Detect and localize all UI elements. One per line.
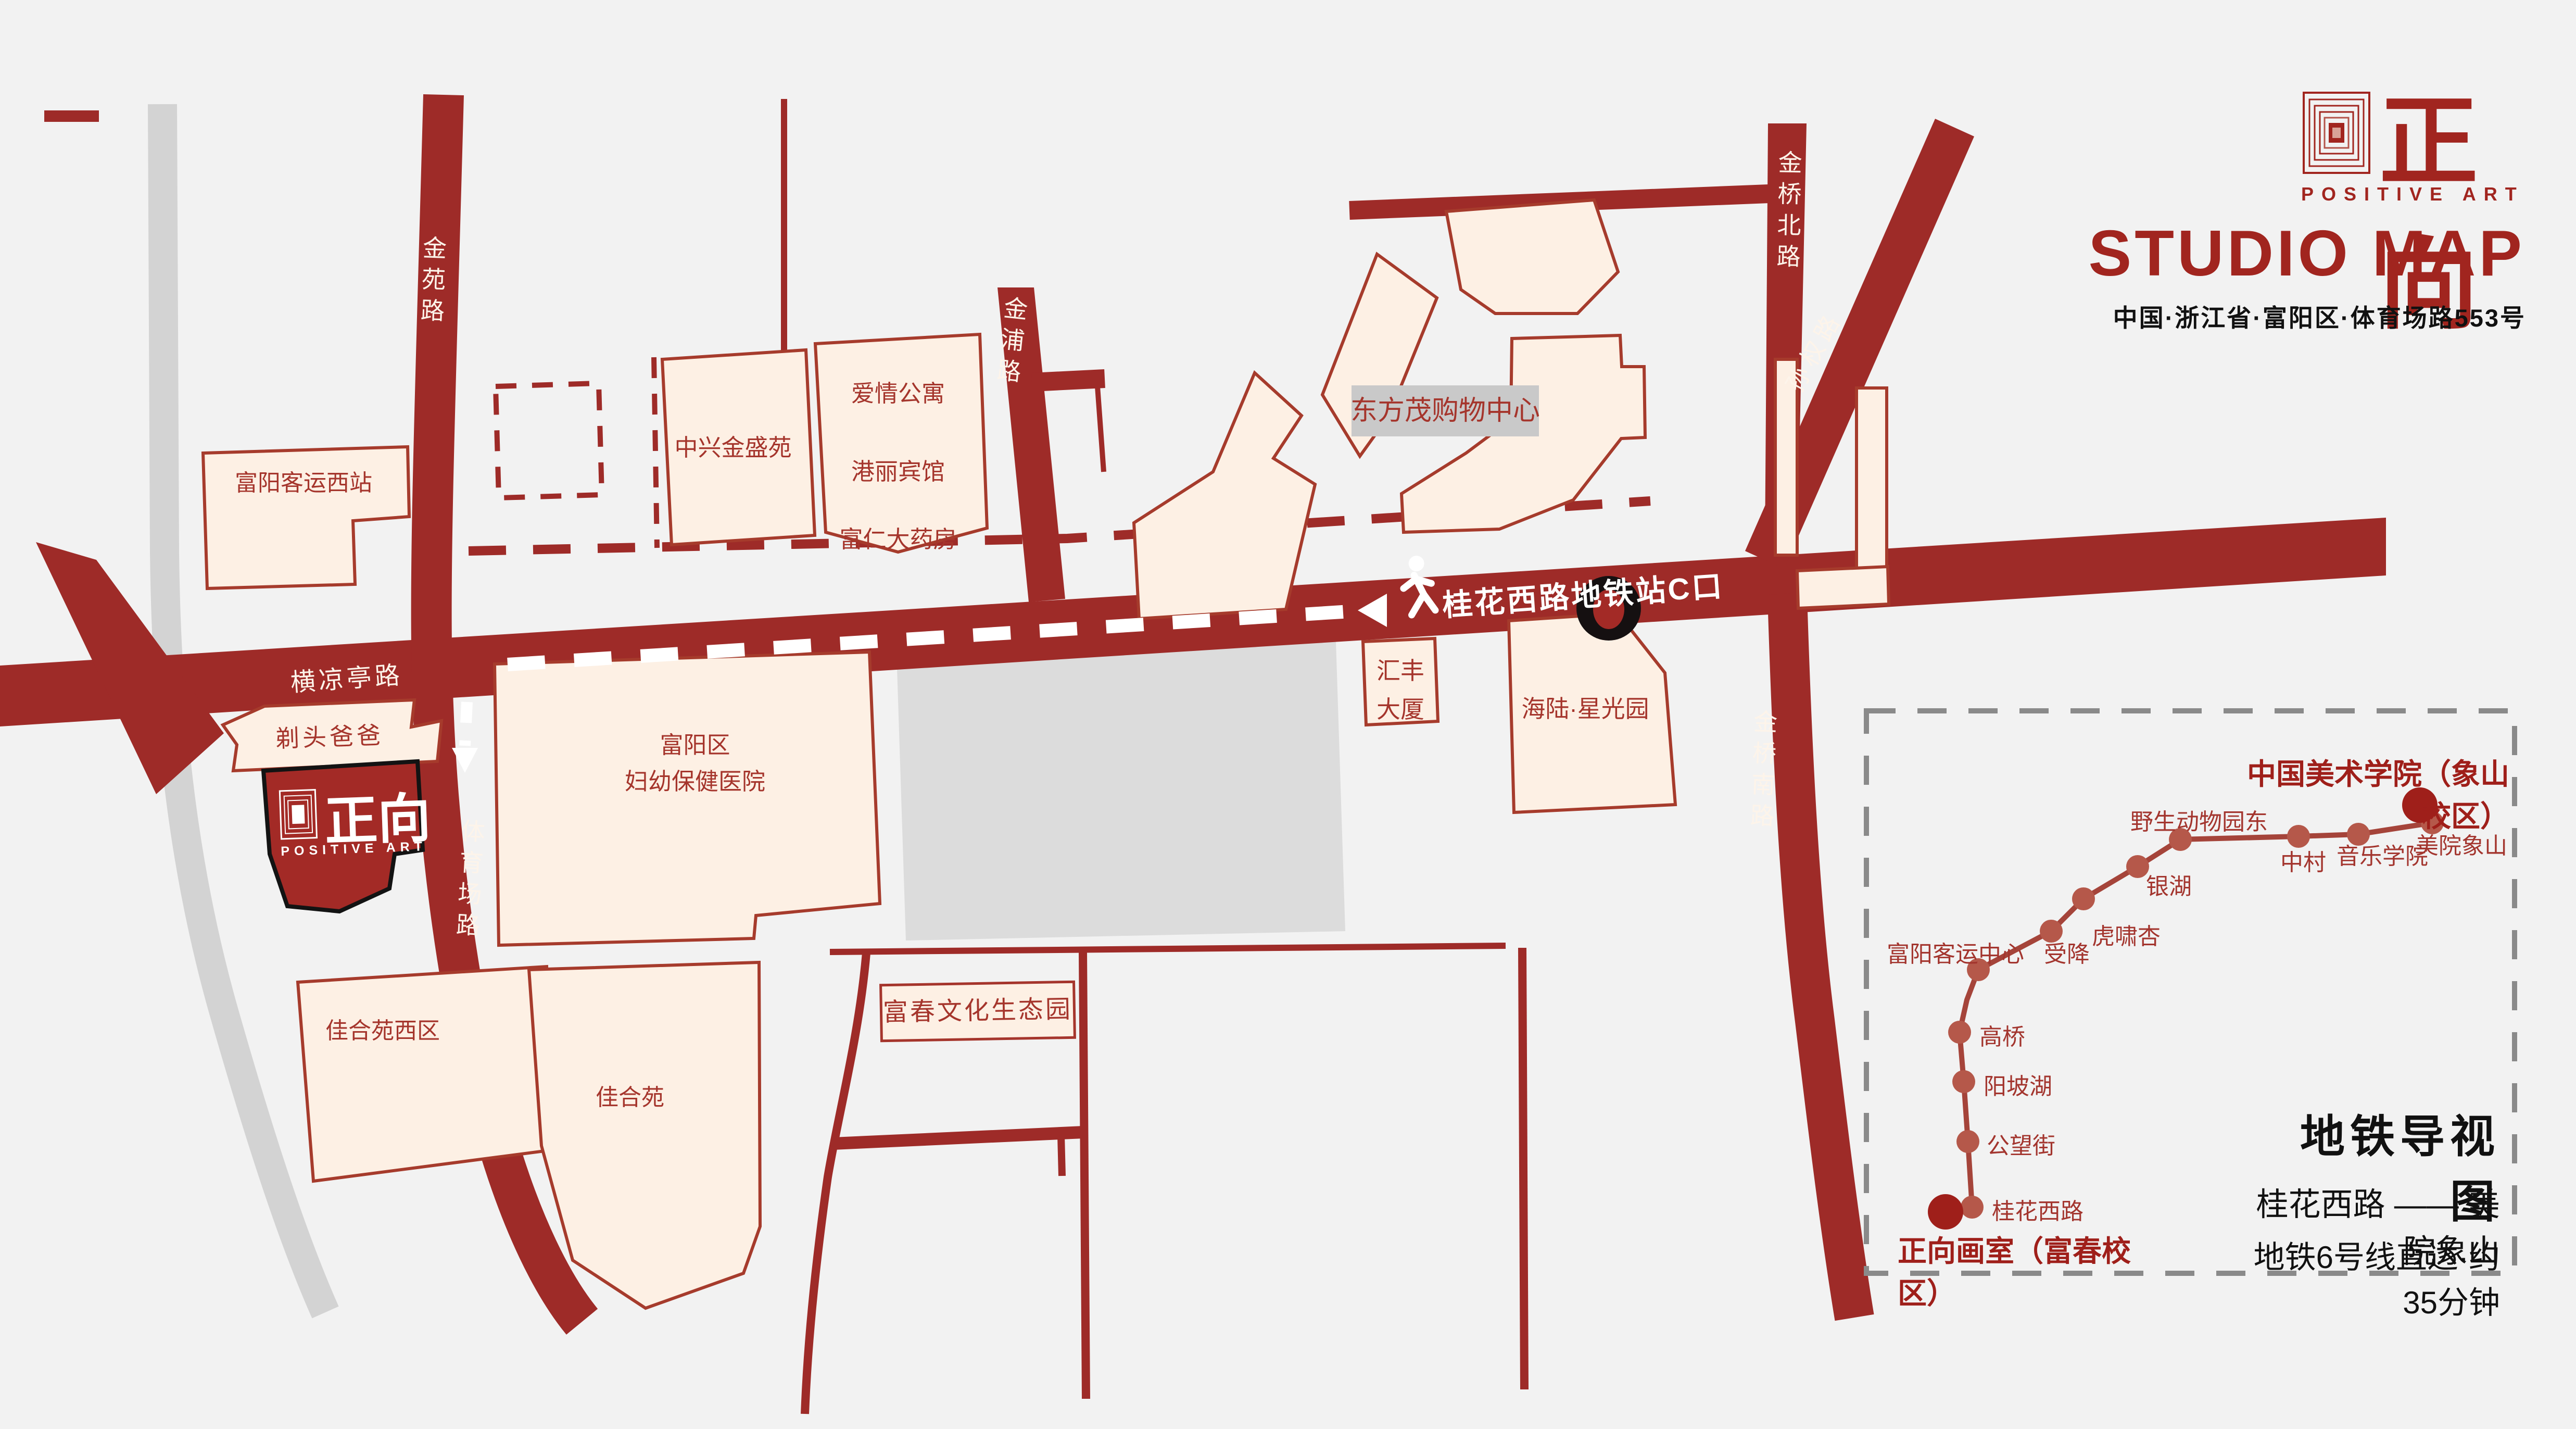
metro-station-label: 银湖 — [2146, 868, 2192, 901]
label-jiaheyuan-west: 佳合苑西区 — [318, 1016, 448, 1046]
label-fuyang-west-station: 富阳客运西站 — [228, 468, 379, 498]
metro-station-label: 中村 — [2280, 844, 2326, 877]
road-park-stub — [1061, 1135, 1062, 1176]
header-address: 中国·浙江省·富阳区·体育场路553号 — [2056, 298, 2526, 334]
building-ramp-connector — [1797, 567, 1889, 608]
metro-dot-gongwangjie — [1956, 1130, 1979, 1153]
map-canvas — [0, 0, 2576, 1429]
metro-start-label: 正向画室（富春校区） — [1898, 1228, 2168, 1312]
metro-station-label: 野生动物园东 — [2130, 803, 2268, 836]
building-jiaheyuan-west — [298, 967, 553, 1181]
metro-station-label: 受降 — [2044, 935, 2090, 969]
metro-station-label: 虎啸杏 — [2092, 918, 2161, 951]
metro-station-label: 阳坡湖 — [1984, 1068, 2052, 1101]
label-box-fuchun-park: 富春文化生态园 — [879, 981, 1076, 1043]
building-mall-b — [1134, 373, 1315, 619]
label-dongfangmao: 东方茂购物中心 — [1350, 393, 1540, 429]
route-dashed-south — [465, 702, 467, 746]
label-titou: 剃头爸爸 — [264, 719, 395, 756]
label-aiqing: 爱情公寓 — [830, 378, 966, 410]
metro-end-label: 中国美术学院（象山校区） — [2246, 751, 2509, 835]
dashed-block-outline — [496, 383, 602, 498]
building-mall-c — [1446, 200, 1618, 314]
metro-dot-yangpohu — [1952, 1070, 1975, 1093]
brand-logo-icon — [2302, 91, 2371, 174]
metro-dot-gaoqiao — [1948, 1021, 1971, 1044]
metro-station-label: 高桥 — [1979, 1018, 2025, 1051]
road-jinqiao-south — [1788, 612, 1854, 1318]
studio-map-poster: 金苑路 金浦路 金桥北路 金桥南路 孙权路 横凉亭路 体育场路 桂花西路地铁站C… — [0, 0, 2576, 1429]
label-zhongxing: 中兴金盛苑 — [671, 432, 795, 464]
road-thin-east-of-jinpu — [1097, 386, 1104, 472]
road-park-west — [805, 953, 866, 1414]
road-label-jinqiao-south: 金桥南路 — [1742, 709, 1781, 887]
road-park-top — [830, 946, 1506, 952]
metro-route-note: 地铁6号线直达·约35分钟 — [2228, 1232, 2500, 1323]
metro-station-label: 富阳客运中心 — [1868, 935, 2024, 969]
road-label-jinyuan: 金苑路 — [413, 235, 450, 350]
metro-station-label: 公望街 — [1987, 1127, 2055, 1160]
label-box-dongfangmao: 东方茂购物中心 — [1352, 385, 1539, 436]
label-huifeng-line1: 汇丰 — [1374, 652, 1426, 691]
label-hospital: 富阳区 妇幼保健医院 — [599, 727, 791, 800]
metro-endpoint-studio-dot — [1928, 1194, 1963, 1230]
label-hailu: 海陆·星光园 — [1510, 693, 1661, 725]
label-hospital-line1: 富阳区 — [599, 727, 791, 763]
page-title: STUDIO MAP — [2056, 217, 2525, 291]
road-park-middle — [1083, 952, 1086, 1399]
label-fuchun-park: 富春文化生态园 — [882, 993, 1072, 1030]
road-park-east — [1522, 948, 1524, 1389]
brand-en: POSITIVE ART — [2301, 183, 2525, 205]
road-label-jinqiao-north: 金桥北路 — [1770, 149, 1805, 327]
studio-logo-icon — [279, 789, 318, 840]
road-jinpu-stub — [1032, 379, 1105, 382]
metro-dot-guihuaxilu — [1961, 1196, 1984, 1219]
label-jiaheyuan: 佳合苑 — [583, 1082, 677, 1113]
metro-station-label: 桂花西路 — [1992, 1193, 2083, 1226]
plaza-block — [896, 642, 1345, 941]
metro-station-label: 音乐学院 — [2337, 837, 2428, 871]
label-hospital-line2: 妇幼保健医院 — [599, 763, 791, 800]
road-park-cross — [833, 1132, 1084, 1144]
label-furen: 富仁大药房 — [817, 524, 979, 556]
label-huifeng: 汇丰 大厦 — [1374, 652, 1426, 729]
metro-dot-huxiaoxing — [2072, 887, 2095, 910]
building-aiqing-block — [815, 334, 987, 552]
road-stub-topleft — [44, 110, 99, 122]
dashed-boundary-line — [654, 357, 657, 548]
label-gangli: 港丽宾馆 — [830, 456, 966, 488]
label-huifeng-line2: 大厦 — [1374, 691, 1426, 729]
metro-station-label: 美院象山 — [2416, 827, 2507, 860]
